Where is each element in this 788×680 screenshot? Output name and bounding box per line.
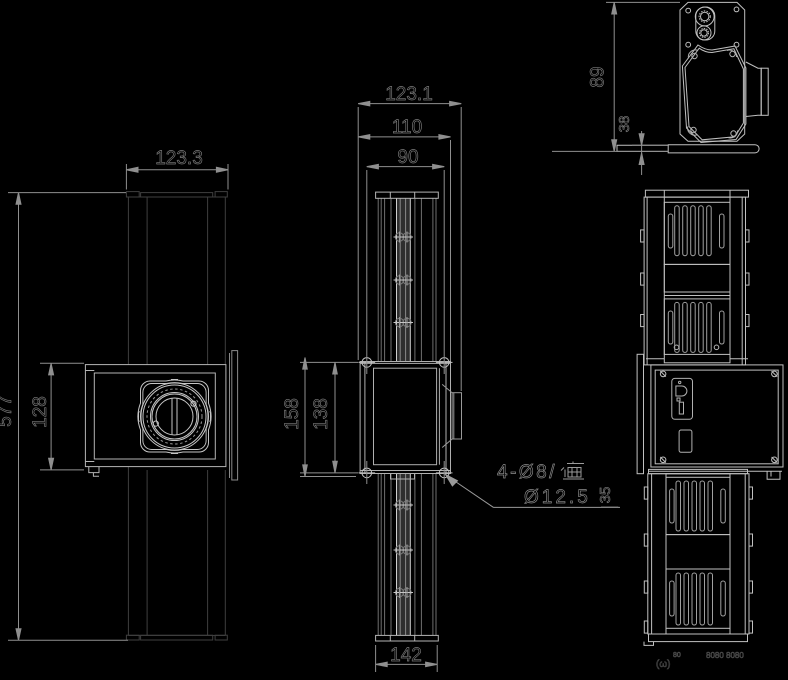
- svg-text:80: 80: [673, 652, 681, 659]
- svg-text:89: 89: [588, 66, 609, 87]
- svg-text:123.3: 123.3: [155, 148, 203, 169]
- svg-text:138: 138: [311, 398, 332, 430]
- svg-text:158: 158: [282, 398, 303, 430]
- svg-text:110: 110: [392, 117, 422, 138]
- svg-text:128: 128: [30, 396, 51, 428]
- svg-text:90: 90: [397, 147, 418, 168]
- svg-text:142: 142: [390, 645, 422, 666]
- svg-text:35: 35: [597, 487, 614, 504]
- svg-text:38: 38: [616, 116, 633, 133]
- svg-text:577: 577: [0, 395, 16, 427]
- svg-text:Ø12.5: Ø12.5: [524, 487, 591, 508]
- svg-text:4-Ø8/: 4-Ø8/: [497, 462, 557, 483]
- svg-text:(ω): (ω): [656, 659, 670, 670]
- svg-text:8080 8080: 8080 8080: [706, 651, 744, 660]
- svg-text:123.1: 123.1: [385, 84, 433, 105]
